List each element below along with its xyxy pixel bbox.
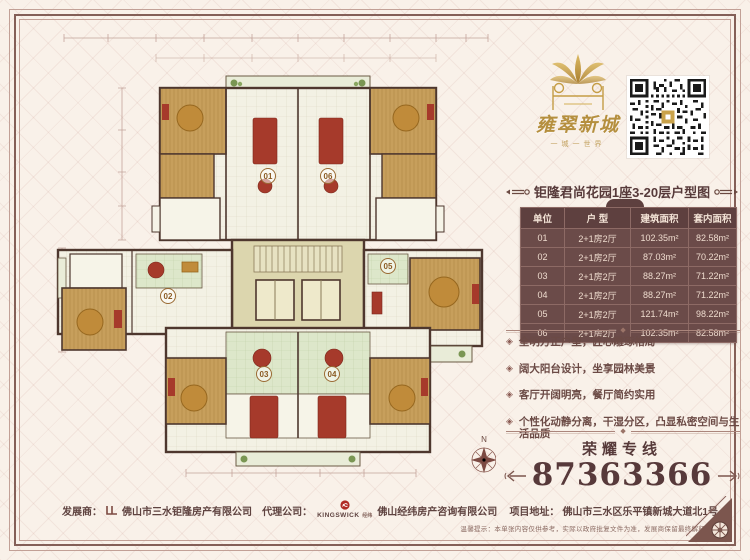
table-row: 052+1房2厅 121.74m²98.22m² [521, 305, 737, 324]
kingswick-cn: 经纬 [362, 513, 372, 519]
unit-label-02: 02 [161, 289, 176, 304]
developer-group: 发展商： 佛山市三水钜隆房产有限公司 [62, 503, 252, 518]
sofa [319, 118, 343, 164]
staircase [254, 246, 342, 272]
unit-label-06: 06 [321, 169, 336, 184]
table-row: 032+1房2厅 88.27m²71.22m² [521, 267, 737, 286]
developer-label: 发展商： [62, 503, 102, 518]
floorplan-drawing: 01 06 [56, 26, 496, 481]
wing-top: 01 06 [152, 76, 444, 240]
kingswick-swirl-icon [340, 500, 350, 510]
brand-block: 雍翠新城 一城一世界 [512, 52, 644, 170]
developer-name: 佛山市三水钜隆房产有限公司 [122, 503, 252, 518]
col-unit: 单位 [521, 208, 565, 229]
table-header-row: 单位 户 型 建筑面积 套内面积 [521, 208, 737, 229]
svg-text:06: 06 [324, 172, 333, 181]
table-notch-top [606, 199, 644, 207]
property-flyer: 01 06 [0, 0, 750, 560]
corner-ornament-icon [686, 496, 734, 544]
elevator-core [232, 240, 364, 330]
compass-rose: N [471, 435, 496, 473]
kingswick-wordmark: KINGSWICK [317, 512, 359, 519]
hotline-number: 87363366 [532, 460, 713, 491]
divider-bottom: ◆ [506, 428, 740, 434]
title-flourish-left-icon [506, 187, 530, 197]
hotline-flourish-left-icon [504, 469, 526, 483]
feature-item: ◈ 客厅开阔明亮，餐厅简约实用 [506, 389, 744, 402]
kingswick-logo: KINGSWICK 经纬 [317, 500, 372, 520]
floorplan: 01 06 [56, 26, 496, 481]
bed [318, 396, 346, 438]
disclaimer: 温馨提示：本单张内容仅供参考，实际以政府批复文件为准，发展商保留最终解释权 [460, 523, 712, 533]
col-type: 户 型 [565, 208, 631, 229]
footer: 发展商： 佛山市三水钜隆房产有限公司 代理公司： KINGSWICK 经纬 佛山… [62, 500, 718, 520]
feature-item: ◈ 全明方正户型，匠心雕琢格局 [506, 336, 744, 349]
svg-text:02: 02 [164, 292, 173, 301]
diamond-bullet-icon: ◈ [506, 389, 513, 401]
divider-top: ◆ [506, 327, 740, 333]
svg-text:05: 05 [384, 262, 393, 271]
unit-label-05: 05 [381, 259, 396, 274]
unit-label-01: 01 [261, 169, 276, 184]
svg-text:03: 03 [260, 370, 269, 379]
title-flourish-right-icon [714, 187, 738, 197]
agency-name: 佛山经纬房产咨询有限公司 [377, 503, 497, 518]
balcony-bottom [236, 452, 360, 466]
hotline-label: 荣耀专线 [498, 438, 746, 459]
address-label: 项目地址： [509, 503, 559, 518]
table-row: 022+1房2厅 87.03m²70.22m² [521, 248, 737, 267]
diamond-bullet-icon: ◈ [506, 416, 513, 428]
developer-logo-icon [105, 504, 119, 516]
feature-item: ◈ 阔大阳台设计，坐享园林美景 [506, 363, 744, 376]
sofa [253, 118, 277, 164]
hotline-block: 荣耀专线 87363366 [498, 438, 746, 491]
agency-group: 代理公司： KINGSWICK 经纬 佛山经纬房产咨询有限公司 [262, 500, 497, 520]
table-row: 012+1房2厅 102.35m²82.58m² [521, 229, 737, 248]
svg-text:01: 01 [264, 172, 273, 181]
unit-label-04: 04 [325, 367, 340, 382]
col-inner-area: 套内面积 [689, 208, 737, 229]
diamond-bullet-icon: ◈ [506, 336, 513, 348]
unit-label-03: 03 [257, 367, 272, 382]
agency-label: 代理公司： [262, 503, 312, 518]
table-row: 042+1房2厅 88.27m²71.22m² [521, 286, 737, 305]
qr-code [627, 76, 709, 158]
col-built-area: 建筑面积 [631, 208, 689, 229]
bed [250, 396, 278, 438]
brand-tagline: 一城一世界 [512, 139, 644, 149]
hotline-flourish-right-icon [718, 469, 740, 483]
wing-bottom: 03 04 [166, 328, 430, 466]
unit-area-table: 单位 户 型 建筑面积 套内面积 012+1房2厅 102.35m²82.58m… [520, 207, 737, 343]
brand-name: 雍翠新城 [512, 116, 644, 135]
diamond-bullet-icon: ◈ [506, 363, 513, 375]
svg-text:04: 04 [328, 370, 337, 379]
brand-emblem-icon [542, 52, 614, 114]
svg-text:N: N [481, 435, 487, 444]
